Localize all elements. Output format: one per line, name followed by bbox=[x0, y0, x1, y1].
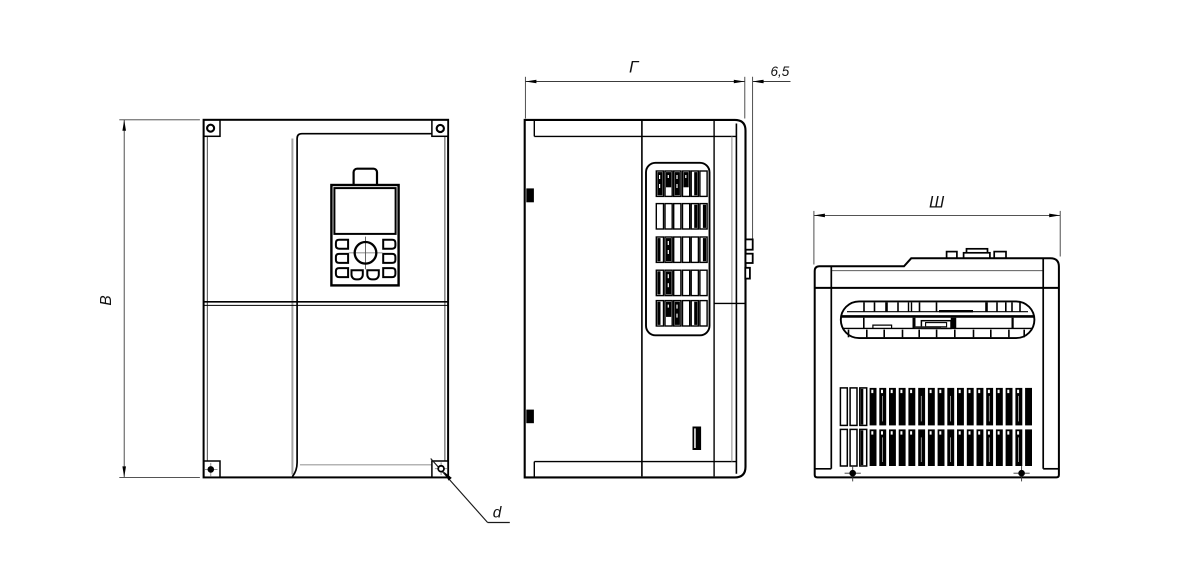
svg-text:d: d bbox=[493, 505, 503, 522]
svg-text:В: В bbox=[98, 295, 115, 305]
svg-text:Ш: Ш bbox=[929, 194, 945, 212]
svg-text:6,5: 6,5 bbox=[771, 64, 790, 79]
